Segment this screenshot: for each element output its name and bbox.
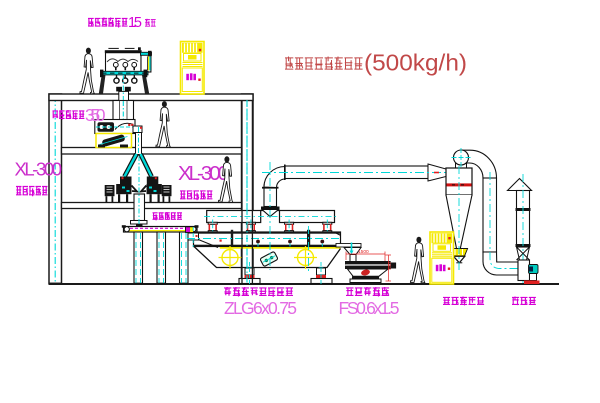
svg-text:350: 350 bbox=[85, 105, 106, 125]
svg-text:XL-300: XL-300 bbox=[178, 162, 229, 185]
svg-text:(500kg/h): (500kg/h) bbox=[364, 50, 467, 76]
svg-text:1.5: 1.5 bbox=[128, 15, 142, 31]
svg-text:FS0.6x1.5: FS0.6x1.5 bbox=[339, 298, 400, 318]
svg-text:1500: 1500 bbox=[358, 249, 369, 255]
svg-text:540: 540 bbox=[387, 262, 393, 270]
svg-text:ZLG6x0.75: ZLG6x0.75 bbox=[224, 298, 297, 318]
svg-text:XL-300: XL-300 bbox=[15, 159, 63, 180]
